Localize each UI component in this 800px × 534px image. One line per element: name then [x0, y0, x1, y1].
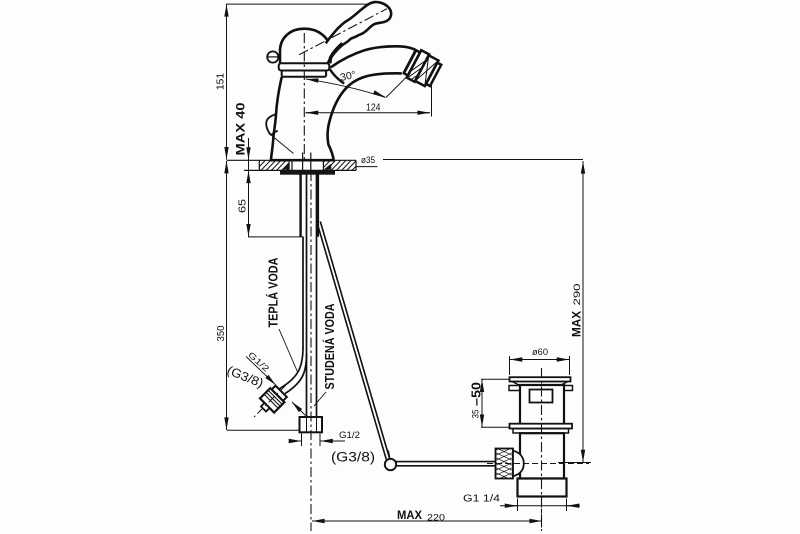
- svg-text:65: 65: [238, 198, 249, 213]
- svg-text:35: 35: [471, 410, 482, 419]
- svg-text:(G3/8): (G3/8): [331, 450, 375, 465]
- svg-text:G1/2: G1/2: [339, 430, 360, 441]
- svg-text:ø35: ø35: [361, 155, 375, 165]
- svg-text:290: 290: [572, 284, 583, 306]
- svg-text:MAX 40: MAX 40: [236, 103, 248, 156]
- svg-text:G1 1/4: G1 1/4: [463, 493, 500, 505]
- svg-text:220: 220: [427, 513, 445, 524]
- svg-text:TEPLÁ VODA: TEPLÁ VODA: [266, 258, 281, 328]
- svg-text:MAX: MAX: [397, 508, 422, 522]
- svg-text:STUDENÁ VODA: STUDENÁ VODA: [322, 304, 337, 390]
- svg-text:–50: –50: [470, 382, 484, 406]
- svg-text:350: 350: [216, 325, 227, 341]
- svg-text:MAX: MAX: [572, 311, 584, 337]
- svg-text:ø60: ø60: [532, 347, 548, 357]
- svg-text:151: 151: [216, 73, 227, 90]
- svg-text:124: 124: [366, 102, 381, 113]
